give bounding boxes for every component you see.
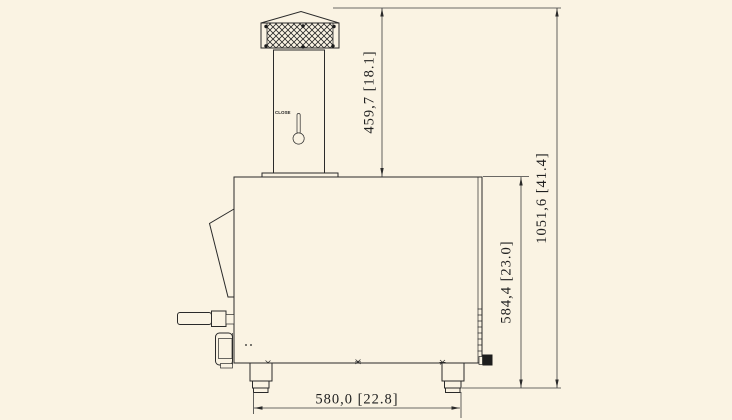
chimney-cap-mesh bbox=[267, 23, 333, 48]
handle-mount bbox=[226, 315, 234, 325]
dimension-body-height: 584,4 [23.0] bbox=[499, 177, 523, 388]
machine-foot-left bbox=[250, 363, 272, 393]
technical-drawing: CLOSE bbox=[0, 0, 732, 420]
dimension-chimney-height: 459,7 [18.1] bbox=[362, 8, 384, 177]
discharge-chute bbox=[210, 209, 235, 297]
dimension-overall-height: 1051,6 [41.4] bbox=[534, 8, 559, 388]
drawing-canvas: CLOSE bbox=[0, 0, 732, 420]
sampler-handle bbox=[178, 311, 235, 327]
dimension-label-base-width: 580,0 [22.8] bbox=[315, 392, 398, 408]
chimney-cap bbox=[261, 12, 339, 49]
dimension-base-width: 580,0 [22.8] bbox=[254, 392, 460, 410]
handle-rod bbox=[178, 313, 212, 325]
dimension-label-chimney-height: 459,7 [18.1] bbox=[362, 50, 378, 133]
dimension-label-overall-height: 1051,6 [41.4] bbox=[534, 152, 550, 244]
chimney-cap-lid bbox=[261, 12, 339, 24]
damper-label: CLOSE bbox=[275, 110, 291, 115]
machine-foot-right bbox=[442, 363, 464, 393]
dimension-label-body-height: 584,4 [23.0] bbox=[499, 240, 515, 323]
damper-knob bbox=[293, 133, 304, 144]
machine-body bbox=[234, 177, 482, 363]
handle-collar bbox=[212, 311, 227, 327]
detail-dot bbox=[245, 344, 247, 346]
detail-dot bbox=[250, 344, 252, 346]
